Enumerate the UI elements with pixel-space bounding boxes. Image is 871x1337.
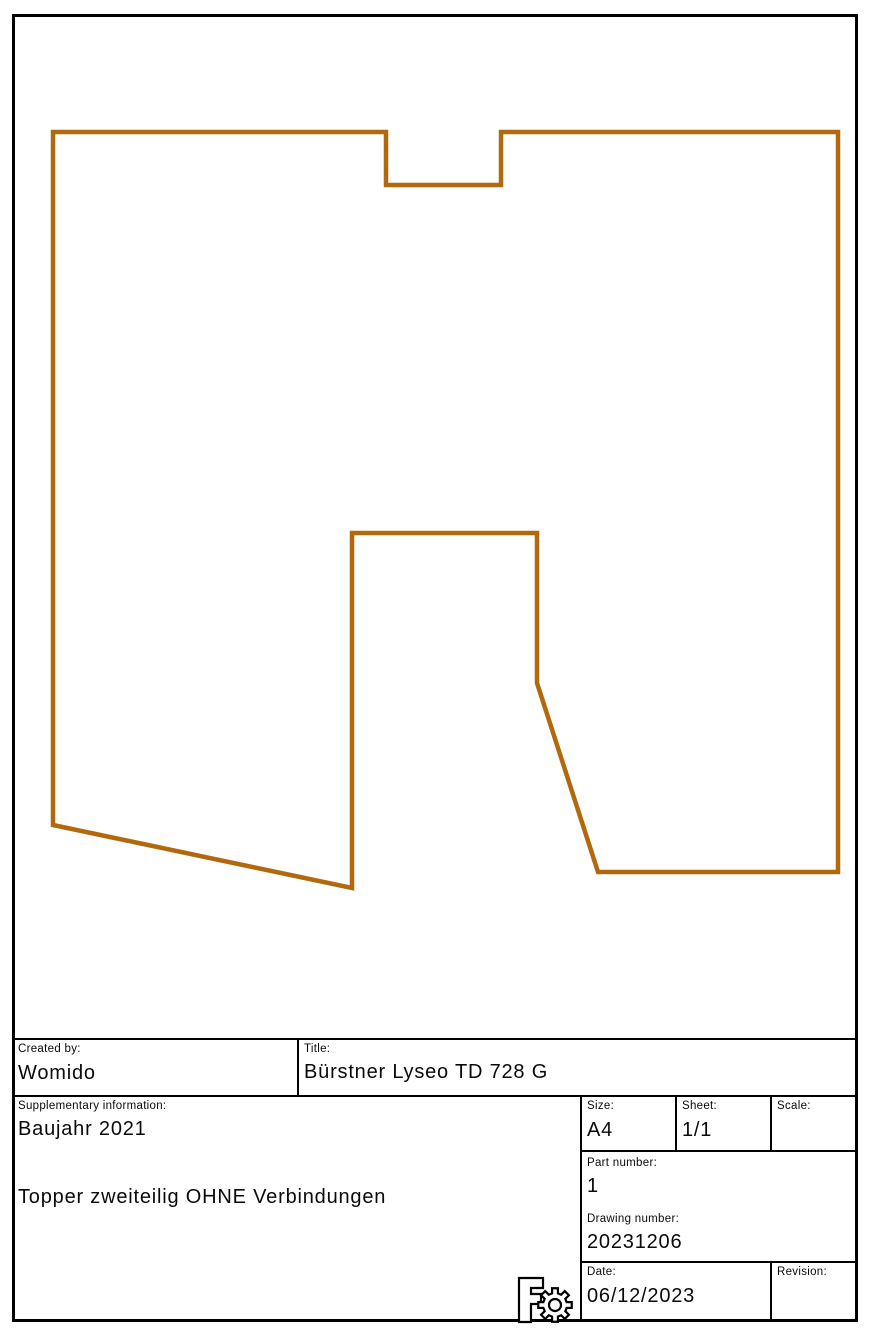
- titleblock-column-divider: [580, 1095, 582, 1322]
- topper-outline-polygon: [53, 132, 838, 888]
- date-value: 06/12/2023: [587, 1285, 695, 1308]
- date-label: Date:: [587, 1266, 616, 1278]
- revision-label: Revision:: [777, 1266, 827, 1278]
- supplementary-line2: Topper zweiteilig OHNE Verbindungen: [18, 1186, 386, 1209]
- supplementary-line1: Baujahr 2021: [18, 1118, 147, 1141]
- freecad-gear-logo-icon: [514, 1268, 578, 1326]
- sheet-value: 1/1: [682, 1119, 712, 1142]
- titleblock-scale-divider: [770, 1095, 772, 1152]
- title-value: Bürstner Lyseo TD 728 G: [304, 1061, 548, 1084]
- created-by-label: Created by:: [18, 1043, 81, 1055]
- part-number-value: 1: [587, 1175, 599, 1198]
- titleblock-sizerow-line: [580, 1150, 858, 1152]
- titleblock-top-line: [12, 1038, 858, 1040]
- created-by-value: Womido: [18, 1062, 96, 1085]
- titleblock-createdby-divider: [297, 1038, 299, 1097]
- titleblock-revision-divider: [770, 1261, 772, 1322]
- drawing-number-value: 20231206: [587, 1231, 682, 1254]
- titleblock-sheet-divider: [675, 1095, 677, 1152]
- logo-letter-f: [519, 1278, 543, 1322]
- scale-label: Scale:: [777, 1100, 811, 1112]
- size-value: A4: [587, 1119, 613, 1142]
- title-label: Title:: [304, 1043, 330, 1055]
- supplementary-label: Supplementary information:: [18, 1100, 166, 1112]
- part-number-label: Part number:: [587, 1157, 657, 1169]
- drawing-number-label: Drawing number:: [587, 1213, 679, 1225]
- drawing-sheet: Created by: Womido Title: Bürstner Lyseo…: [0, 0, 871, 1337]
- sheet-label: Sheet:: [682, 1100, 717, 1112]
- size-label: Size:: [587, 1100, 614, 1112]
- logo-gear-hole: [549, 1299, 561, 1311]
- titleblock-daterow-line: [580, 1261, 858, 1263]
- titleblock-row1-line: [12, 1095, 858, 1097]
